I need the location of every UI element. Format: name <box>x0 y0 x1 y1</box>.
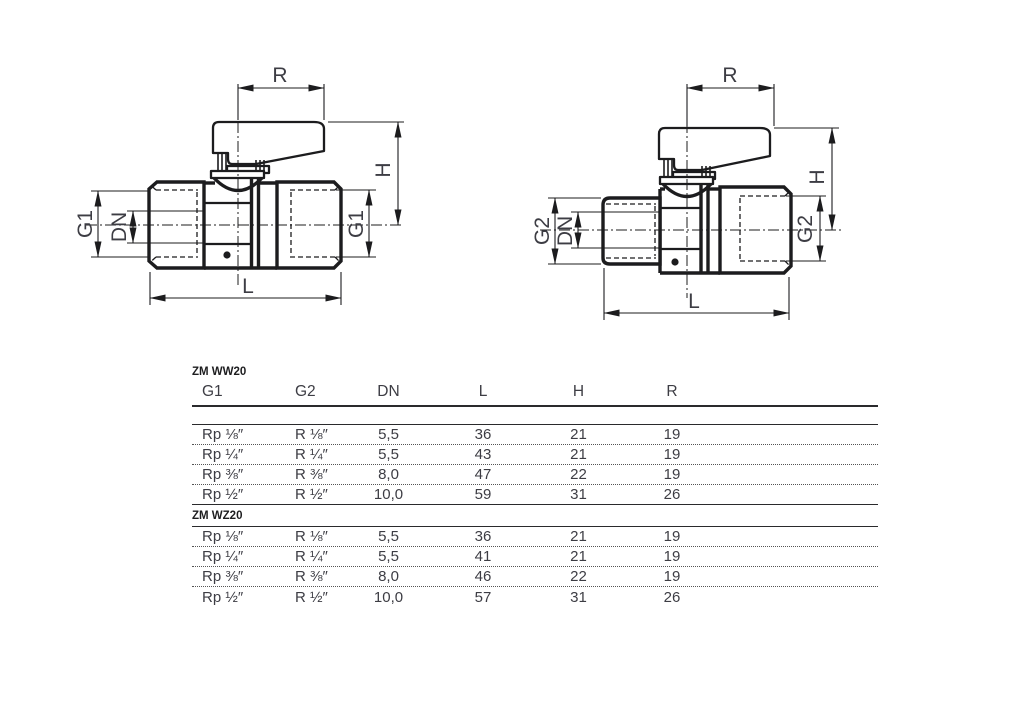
table-row: Rp ⅛″R ⅛″5,5362119 <box>192 425 878 445</box>
table-cell: Rp ⅛″ <box>192 426 285 443</box>
valve-diagram-male-female: R H G2 DN <box>531 64 843 320</box>
table-row: Rp ¼″R ¼″5,5432119 <box>192 445 878 465</box>
table-cell: 31 <box>531 486 626 503</box>
table-row: Rp ⅜″R ⅜″8,0472219 <box>192 465 878 485</box>
table-zm-ww20: ZM WW20 G1 G2 DN L H R Rp ⅛″R ⅛″5,536211… <box>192 366 878 505</box>
technical-drawings: R H G1 DN <box>0 0 1009 345</box>
valve-body-center <box>660 185 720 273</box>
table-cell: R ½″ <box>285 589 342 606</box>
dim-label-r: R <box>272 64 287 87</box>
table-cell: 21 <box>531 426 626 443</box>
table-zm-wz20: ZM WZ20 Rp ⅛″R ⅛″5,5362119Rp ¼″R ¼″5,541… <box>192 505 878 607</box>
table-cell: 8,0 <box>342 568 435 585</box>
centerlines <box>540 84 843 298</box>
dim-label-r: R <box>722 64 737 87</box>
column-header: G2 <box>285 383 342 405</box>
table-row: Rp ⅜″R ⅜″8,0462219 <box>192 567 878 587</box>
column-header: DN <box>342 383 435 405</box>
table-spacer <box>192 407 878 425</box>
table-cell: Rp ½″ <box>192 589 285 606</box>
male-thread-left <box>603 198 660 264</box>
table-cell: Rp ⅛″ <box>192 528 285 545</box>
dimension-tables: ZM WW20 G1 G2 DN L H R Rp ⅛″R ⅛″5,536211… <box>192 366 878 607</box>
table-cell: 31 <box>531 589 626 606</box>
table-cell: Rp ⅜″ <box>192 466 285 483</box>
table-cell: 22 <box>531 466 626 483</box>
table-cell: 5,5 <box>342 446 435 463</box>
table-row: Rp ¼″R ¼″5,5412119 <box>192 547 878 567</box>
valve-datasheet-page: R H G1 DN <box>0 0 1009 717</box>
table-row: Rp ½″R ½″10,0573126 <box>192 587 878 607</box>
dim-label-g1-right: G1 <box>345 210 368 238</box>
table-cell: 19 <box>626 426 718 443</box>
table-title: ZM WW20 <box>192 366 878 380</box>
table-cell: 36 <box>435 426 531 443</box>
table-cell: 26 <box>626 486 718 503</box>
table-cell: 19 <box>626 548 718 565</box>
dim-label-dn: DN <box>108 212 131 242</box>
dim-r: R <box>687 64 774 126</box>
table-cell: 57 <box>435 589 531 606</box>
table-cell: R ⅛″ <box>285 426 342 443</box>
table-body: Rp ⅛″R ⅛″5,5362119Rp ¼″R ¼″5,5412119Rp ⅜… <box>192 527 878 607</box>
table-row: Rp ⅛″R ⅛″5,5362119 <box>192 527 878 547</box>
table-cell: 47 <box>435 466 531 483</box>
table-cell: 19 <box>626 568 718 585</box>
dim-label-h: H <box>372 162 395 177</box>
vent-hole <box>671 258 678 265</box>
dim-label-l: L <box>688 290 700 313</box>
dim-label-h: H <box>806 169 829 184</box>
table-cell: 36 <box>435 528 531 545</box>
table-cell: R ⅛″ <box>285 528 342 545</box>
valve-body-center <box>204 179 277 268</box>
dim-l: L <box>604 268 789 320</box>
dim-label-dn: DN <box>554 216 577 246</box>
table-cell: 43 <box>435 446 531 463</box>
table-cell: R ⅜″ <box>285 568 342 585</box>
table-cell: 41 <box>435 548 531 565</box>
table-cell: 5,5 <box>342 548 435 565</box>
table-cell: 19 <box>626 466 718 483</box>
table-cell: 22 <box>531 568 626 585</box>
table-cell: R ⅜″ <box>285 466 342 483</box>
table-cell: R ½″ <box>285 486 342 503</box>
table-cell: R ¼″ <box>285 446 342 463</box>
table-cell: 5,5 <box>342 426 435 443</box>
table-cell: 21 <box>531 528 626 545</box>
dim-label-g2-right: G2 <box>794 215 817 243</box>
column-header: H <box>531 383 626 405</box>
dim-label-g1-left: G1 <box>74 210 97 238</box>
table-cell: 19 <box>626 528 718 545</box>
column-header: R <box>626 383 718 405</box>
table-cell: Rp ¼″ <box>192 446 285 463</box>
table-cell: 8,0 <box>342 466 435 483</box>
dim-l: L <box>150 272 341 305</box>
valve-diagram-female-female: R H G1 DN <box>74 64 404 305</box>
dim-label-l: L <box>242 275 254 298</box>
valve-handle <box>659 128 770 179</box>
dim-dn: DN <box>554 212 578 248</box>
table-title: ZM WZ20 <box>192 505 878 527</box>
valve-handle <box>213 122 324 173</box>
column-header: L <box>435 383 531 405</box>
table-cell: 21 <box>531 548 626 565</box>
table-cell: Rp ½″ <box>192 486 285 503</box>
table-cell: 5,5 <box>342 528 435 545</box>
dim-dn: DN <box>108 211 133 243</box>
table-cell: Rp ⅜″ <box>192 568 285 585</box>
table-row: Rp ½″R ½″10,0593126 <box>192 485 878 505</box>
table-cell: R ¼″ <box>285 548 342 565</box>
table-cell: 59 <box>435 486 531 503</box>
table-header: G1 G2 DN L H R <box>192 380 878 407</box>
table-cell: 19 <box>626 446 718 463</box>
table-body: Rp ⅛″R ⅛″5,5362119Rp ¼″R ¼″5,5432119Rp ⅜… <box>192 425 878 505</box>
dim-r: R <box>238 64 324 120</box>
table-cell: 46 <box>435 568 531 585</box>
table-cell: 10,0 <box>342 589 435 606</box>
column-header: G1 <box>192 383 285 405</box>
table-cell: Rp ¼″ <box>192 548 285 565</box>
table-cell: 10,0 <box>342 486 435 503</box>
table-cell: 26 <box>626 589 718 606</box>
dim-label-g2-left: G2 <box>531 217 554 245</box>
vent-hole <box>223 251 230 258</box>
table-cell: 21 <box>531 446 626 463</box>
